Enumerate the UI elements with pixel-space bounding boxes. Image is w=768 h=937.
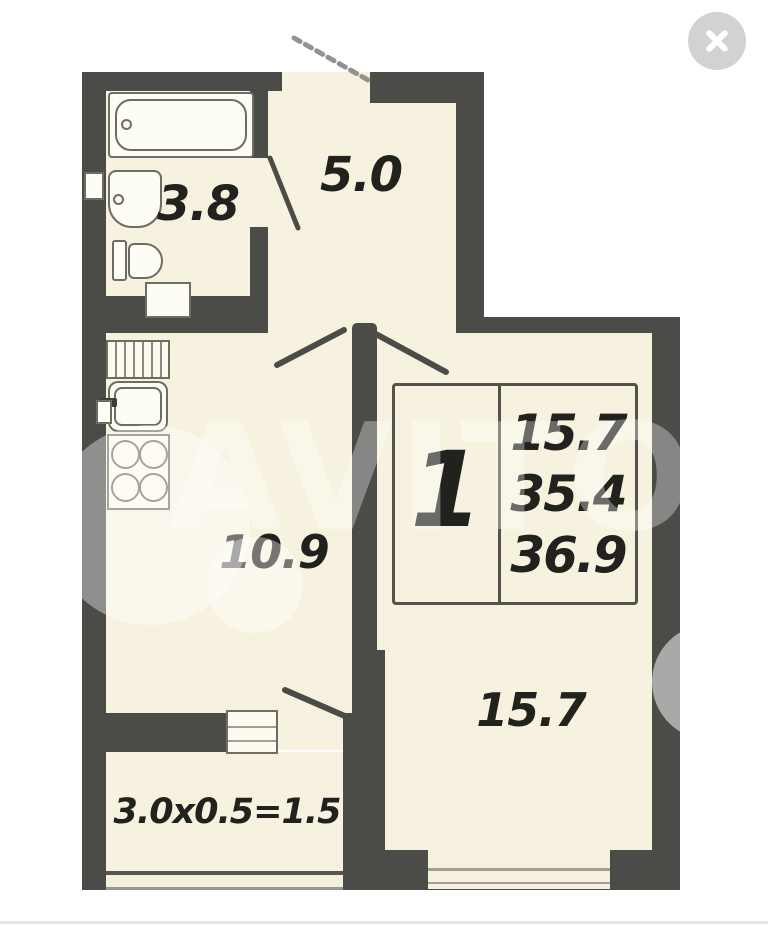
window-bottom-line bbox=[428, 882, 610, 884]
room-label-hallway: 5.0 bbox=[320, 147, 402, 203]
bathtub-drain bbox=[121, 119, 132, 130]
balcony-railing bbox=[106, 871, 343, 890]
stove-burner bbox=[111, 440, 140, 469]
floor-room-bottom bbox=[377, 750, 652, 850]
window-bottom-line bbox=[428, 868, 610, 871]
wall-interior-upper bbox=[352, 323, 377, 650]
bathtub-inner-rim bbox=[115, 99, 247, 151]
info-box-rooms-cell: 1 bbox=[395, 386, 498, 602]
balcony-door-window-line bbox=[228, 726, 276, 728]
balcony-formula-label: 3.0x0.5=1.5 bbox=[114, 792, 341, 832]
toilet-bowl bbox=[128, 243, 163, 279]
wall-transition bbox=[456, 317, 662, 333]
wall-balcony-top bbox=[82, 713, 228, 752]
info-box-areas-cell: 15.7 35.4 36.9 bbox=[498, 386, 635, 602]
apartment-info-box: 1 15.7 35.4 36.9 bbox=[392, 383, 638, 605]
balcony-door-window-line bbox=[228, 740, 276, 742]
balcony-door-window bbox=[226, 710, 278, 754]
stove-burner bbox=[139, 440, 168, 469]
washing-machine bbox=[145, 282, 191, 318]
stove-burner bbox=[111, 473, 140, 502]
stove-burner bbox=[139, 473, 168, 502]
bottom-divider-line bbox=[0, 921, 768, 924]
toilet-tank bbox=[112, 240, 127, 281]
image-viewer: 3.8 5.0 10.9 15.7 3.0x0.5=1.5 1 15.7 35.… bbox=[0, 0, 768, 937]
kitchen-wall-fitting bbox=[96, 400, 112, 424]
room-label-bathroom: 3.8 bbox=[157, 176, 239, 232]
rooms-count: 1 bbox=[410, 429, 482, 551]
room-label-room: 15.7 bbox=[476, 683, 586, 737]
wall-right bbox=[652, 317, 680, 890]
room-label-kitchen-living: 10.9 bbox=[219, 525, 329, 579]
bathroom-wall-fitting bbox=[84, 172, 104, 200]
wall-hallway-right bbox=[456, 90, 484, 333]
close-button[interactable] bbox=[688, 12, 746, 70]
kitchen-drying-rack bbox=[106, 340, 170, 379]
kitchen-sink-basin bbox=[114, 387, 162, 426]
bathroom-sink-tap bbox=[113, 194, 124, 205]
area-value: 35.4 bbox=[510, 464, 625, 525]
area-value: 15.7 bbox=[510, 403, 625, 464]
area-value: 36.9 bbox=[510, 525, 625, 586]
wall-interior-middle bbox=[352, 650, 385, 713]
floor-entrance-recess bbox=[282, 72, 370, 102]
